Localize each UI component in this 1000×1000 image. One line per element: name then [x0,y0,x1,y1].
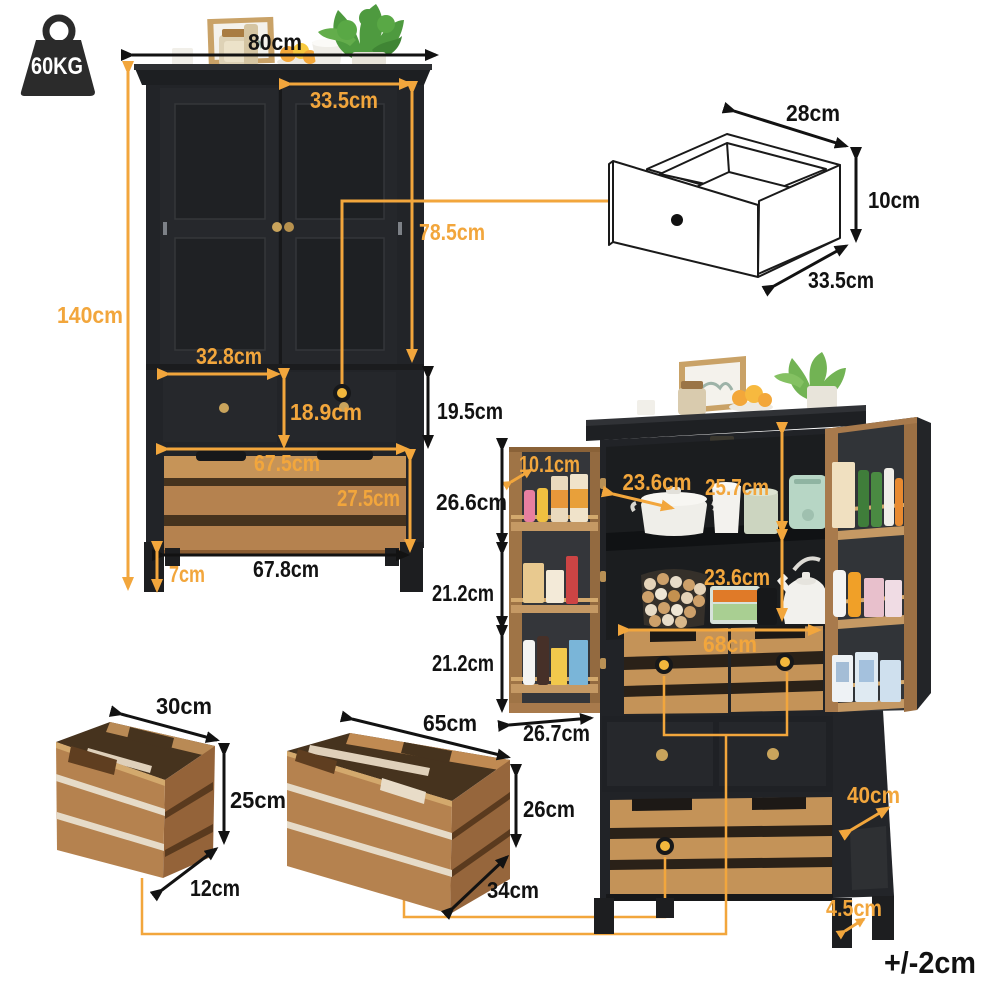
svg-text:+/-2cm: +/-2cm [884,945,976,980]
svg-text:28cm: 28cm [786,100,840,126]
svg-text:23.6cm: 23.6cm [623,469,692,495]
svg-text:67.8cm: 67.8cm [253,556,319,582]
svg-text:21.2cm: 21.2cm [432,580,494,606]
svg-text:25cm: 25cm [230,787,286,813]
svg-text:26cm: 26cm [523,796,575,822]
svg-text:7cm: 7cm [169,561,205,587]
svg-text:26.7cm: 26.7cm [523,720,590,746]
svg-text:23.6cm: 23.6cm [704,564,770,590]
svg-text:33.5cm: 33.5cm [808,267,874,293]
svg-text:34cm: 34cm [487,877,539,903]
svg-text:21.2cm: 21.2cm [432,650,494,676]
svg-text:60KG: 60KG [31,53,83,80]
svg-text:32.8cm: 32.8cm [196,343,262,369]
svg-text:40cm: 40cm [847,782,900,808]
svg-text:25.7cm: 25.7cm [705,474,769,500]
svg-text:12cm: 12cm [190,875,240,901]
svg-text:19.5cm: 19.5cm [437,398,503,424]
svg-text:18.9cm: 18.9cm [290,399,362,425]
svg-text:78.5cm: 78.5cm [419,219,485,245]
svg-text:67.5cm: 67.5cm [254,450,320,476]
svg-text:10cm: 10cm [868,187,920,213]
svg-text:4.5cm: 4.5cm [826,895,882,921]
svg-text:80cm: 80cm [248,29,302,55]
svg-text:68cm: 68cm [703,631,757,657]
svg-text:65cm: 65cm [423,710,477,736]
svg-text:30cm: 30cm [156,693,212,719]
svg-text:140cm: 140cm [57,302,123,328]
svg-text:27.5cm: 27.5cm [337,485,400,511]
svg-text:33.5cm: 33.5cm [310,87,378,113]
svg-text:26.6cm: 26.6cm [436,489,507,515]
